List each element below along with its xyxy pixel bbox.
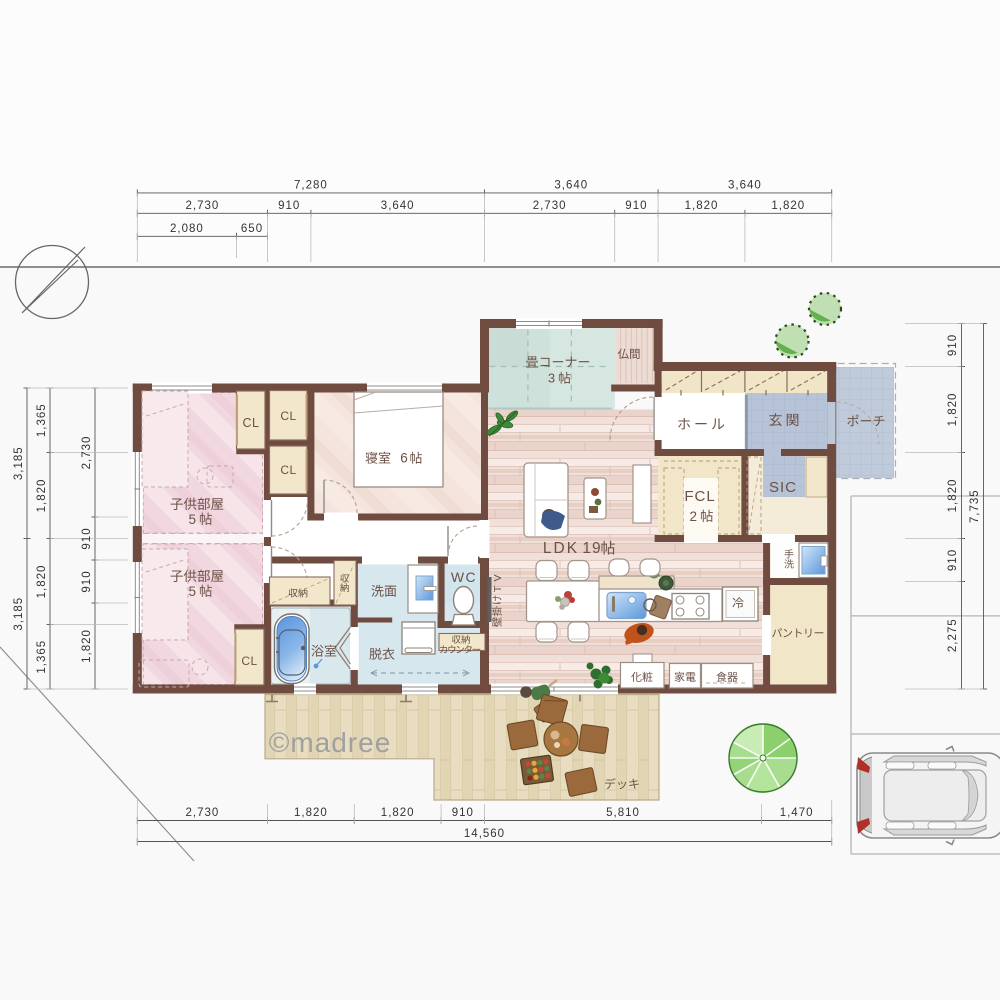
svg-text:3,640: 3,640: [728, 180, 762, 192]
svg-text:1,820: 1,820: [685, 200, 719, 212]
svg-text:CL: CL: [280, 409, 296, 423]
svg-text:5: 5: [188, 584, 196, 599]
svg-text:1,820: 1,820: [771, 200, 805, 212]
svg-text:3,640: 3,640: [381, 200, 415, 212]
svg-text:7,280: 7,280: [294, 180, 328, 192]
svg-text:1,820: 1,820: [36, 479, 48, 513]
svg-text:©madree: ©madree: [269, 727, 392, 758]
svg-text:5,810: 5,810: [606, 807, 640, 819]
svg-text:1,820: 1,820: [81, 629, 93, 663]
svg-text:1,820: 1,820: [381, 807, 415, 819]
svg-text:19: 19: [582, 540, 601, 557]
svg-text:7,735: 7,735: [969, 489, 981, 523]
svg-text:1,820: 1,820: [294, 807, 328, 819]
svg-text:2,275: 2,275: [947, 618, 959, 652]
svg-text:910: 910: [81, 527, 93, 549]
svg-text:CL: CL: [243, 416, 260, 430]
svg-text:2,730: 2,730: [533, 200, 567, 212]
svg-text:2: 2: [689, 509, 697, 524]
svg-text:CL: CL: [280, 463, 296, 477]
svg-text:910: 910: [81, 570, 93, 592]
svg-text:CL: CL: [241, 654, 257, 668]
svg-text:910: 910: [947, 549, 959, 571]
svg-text:3,640: 3,640: [554, 180, 588, 192]
svg-text:6: 6: [400, 451, 408, 466]
svg-text:910: 910: [452, 807, 474, 819]
svg-text:2,730: 2,730: [81, 436, 93, 470]
svg-text:SIC: SIC: [769, 479, 797, 496]
svg-text:V: V: [492, 574, 504, 581]
svg-text:650: 650: [241, 223, 263, 235]
svg-text:1,820: 1,820: [947, 393, 959, 427]
svg-text:910: 910: [625, 200, 647, 212]
svg-text:5: 5: [188, 512, 196, 527]
svg-text:1,470: 1,470: [780, 807, 814, 819]
svg-text:14,560: 14,560: [464, 828, 505, 840]
svg-text:T: T: [492, 585, 504, 592]
svg-text:1,365: 1,365: [36, 403, 48, 437]
svg-text:2,730: 2,730: [186, 200, 220, 212]
svg-text:1,365: 1,365: [36, 640, 48, 674]
svg-text:910: 910: [278, 200, 300, 212]
svg-text:2,730: 2,730: [186, 807, 220, 819]
svg-text:3,185: 3,185: [13, 597, 25, 631]
svg-text:910: 910: [947, 334, 959, 356]
svg-text:WC: WC: [451, 569, 477, 585]
svg-text:1,820: 1,820: [947, 479, 959, 513]
svg-text:1,820: 1,820: [36, 565, 48, 599]
svg-text:2,080: 2,080: [170, 223, 204, 235]
svg-text:3,185: 3,185: [13, 446, 25, 480]
svg-text:LDK: LDK: [543, 540, 579, 557]
svg-text:3: 3: [548, 371, 555, 386]
svg-text:FCL: FCL: [684, 488, 715, 505]
